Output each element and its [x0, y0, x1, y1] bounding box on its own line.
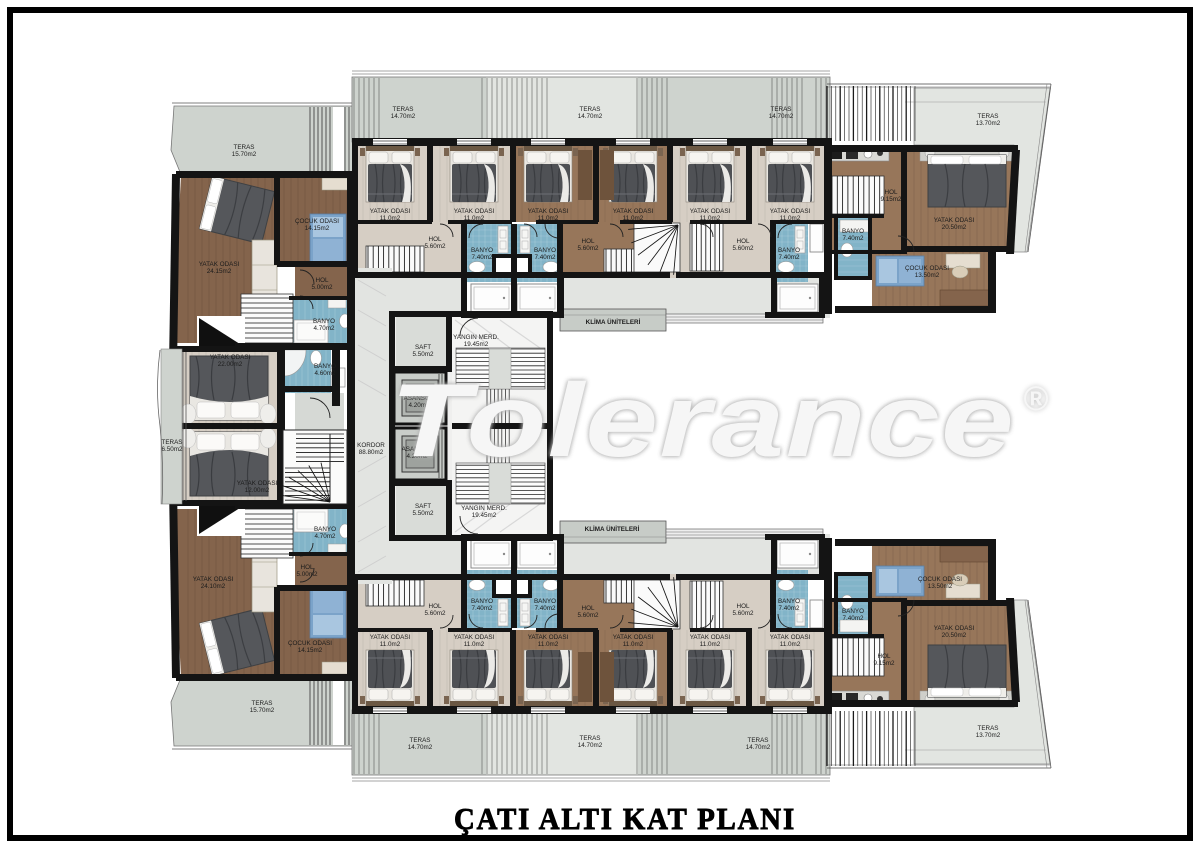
svg-text:ÇOCUK ODASI: ÇOCUK ODASI	[288, 640, 332, 647]
svg-text:19.45m2: 19.45m2	[464, 341, 489, 348]
svg-text:5.50m2: 5.50m2	[412, 510, 434, 517]
svg-text:TERAS: TERAS	[978, 113, 999, 120]
svg-text:YATAK ODASI: YATAK ODASI	[613, 208, 654, 215]
svg-text:YATAK ODASI: YATAK ODASI	[613, 634, 654, 641]
svg-text:YANGIN MERD.: YANGIN MERD.	[453, 334, 499, 341]
svg-text:TERAS: TERAS	[393, 106, 414, 113]
svg-text:14.70m2: 14.70m2	[769, 113, 794, 120]
svg-text:11.0m2: 11.0m2	[700, 641, 721, 648]
svg-text:KLİMA ÜNİTELERİ: KLİMA ÜNİTELERİ	[585, 524, 640, 533]
svg-text:11.0m2: 11.0m2	[780, 641, 801, 648]
svg-text:YATAK ODASI: YATAK ODASI	[770, 208, 811, 215]
svg-text:TERAS: TERAS	[580, 106, 601, 113]
svg-text:®: ®	[1023, 380, 1048, 418]
svg-text:11.0m2: 11.0m2	[380, 641, 401, 648]
svg-text:11.0m2: 11.0m2	[623, 215, 644, 222]
svg-text:YATAK ODASI: YATAK ODASI	[528, 634, 569, 641]
svg-text:11.0m2: 11.0m2	[623, 641, 644, 648]
svg-text:TERAS: TERAS	[234, 144, 255, 151]
svg-text:HOL: HOL	[429, 603, 442, 610]
svg-text:BANYO: BANYO	[778, 247, 800, 254]
svg-text:24.10m2: 24.10m2	[201, 583, 226, 590]
svg-text:YATAK ODASI: YATAK ODASI	[934, 625, 975, 632]
svg-text:TERAS: TERAS	[162, 439, 183, 446]
svg-text:YATAK ODASI: YATAK ODASI	[370, 634, 411, 641]
svg-text:14.70m2: 14.70m2	[746, 744, 771, 751]
svg-text:7.40m2: 7.40m2	[778, 605, 800, 612]
svg-text:6.50m2: 6.50m2	[161, 446, 183, 453]
svg-text:BANYO: BANYO	[842, 228, 864, 235]
svg-text:BANYO: BANYO	[471, 247, 493, 254]
svg-text:HOL: HOL	[429, 236, 442, 243]
svg-text:14.15m2: 14.15m2	[298, 647, 323, 654]
svg-text:11.0m2: 11.0m2	[380, 215, 401, 222]
svg-text:5.60m2: 5.60m2	[577, 612, 599, 619]
svg-text:YATAK ODASI: YATAK ODASI	[454, 208, 495, 215]
svg-text:KORDOR: KORDOR	[357, 442, 385, 449]
svg-text:9.15m2: 9.15m2	[873, 660, 895, 667]
svg-text:TERAS: TERAS	[748, 737, 769, 744]
svg-text:HOL: HOL	[582, 605, 595, 612]
svg-text:5.60m2: 5.60m2	[424, 610, 446, 617]
svg-text:YANGIN MERD.: YANGIN MERD.	[461, 505, 507, 512]
svg-text:YATAK ODASI: YATAK ODASI	[237, 480, 278, 487]
svg-text:5.60m2: 5.60m2	[732, 610, 754, 617]
svg-text:YATAK ODASI: YATAK ODASI	[199, 261, 240, 268]
svg-text:YATAK ODASI: YATAK ODASI	[770, 634, 811, 641]
svg-text:4.70m2: 4.70m2	[313, 325, 335, 332]
svg-text:BANYO: BANYO	[314, 363, 336, 370]
svg-text:HOL: HOL	[878, 653, 891, 660]
svg-text:5.60m2: 5.60m2	[732, 245, 754, 252]
svg-text:HOL: HOL	[582, 238, 595, 245]
svg-text:15.70m2: 15.70m2	[250, 707, 275, 714]
svg-text:7.40m2: 7.40m2	[534, 605, 556, 612]
svg-text:24.15m2: 24.15m2	[207, 268, 232, 275]
svg-text:TERAS: TERAS	[771, 106, 792, 113]
svg-text:13.50m2: 13.50m2	[928, 583, 953, 590]
svg-text:BANYO: BANYO	[534, 598, 556, 605]
svg-text:HOL: HOL	[737, 238, 750, 245]
svg-text:11.0m2: 11.0m2	[464, 641, 485, 648]
svg-text:13.70m2: 13.70m2	[976, 120, 1001, 127]
svg-text:7.40m2: 7.40m2	[471, 254, 493, 261]
svg-text:4.70m2: 4.70m2	[314, 533, 336, 540]
svg-text:HOL: HOL	[301, 564, 314, 571]
svg-text:YATAK ODASI: YATAK ODASI	[934, 217, 975, 224]
svg-text:88.80m2: 88.80m2	[359, 449, 384, 456]
svg-text:YATAK ODASI: YATAK ODASI	[210, 354, 251, 361]
svg-text:YATAK ODASI: YATAK ODASI	[454, 634, 495, 641]
svg-text:14.70m2: 14.70m2	[578, 742, 603, 749]
svg-text:14.70m2: 14.70m2	[391, 113, 416, 120]
svg-text:TERAS: TERAS	[410, 737, 431, 744]
svg-text:ÇATI ALTI KAT PLANI: ÇATI ALTI KAT PLANI	[454, 801, 796, 836]
svg-text:7.40m2: 7.40m2	[778, 254, 800, 261]
svg-text:HOL: HOL	[885, 189, 898, 196]
svg-text:ÇOCUK ODASI: ÇOCUK ODASI	[918, 576, 962, 583]
svg-text:5.50m2: 5.50m2	[412, 351, 434, 358]
svg-text:7.40m2: 7.40m2	[842, 235, 864, 242]
svg-text:YATAK ODASI: YATAK ODASI	[528, 208, 569, 215]
svg-text:13.70m2: 13.70m2	[976, 732, 1001, 739]
svg-text:KLİMA ÜNİTELERİ: KLİMA ÜNİTELERİ	[586, 317, 641, 326]
svg-text:5.00m2: 5.00m2	[311, 284, 333, 291]
svg-text:20.50m2: 20.50m2	[942, 224, 967, 231]
svg-text:11.0m2: 11.0m2	[464, 215, 485, 222]
svg-text:ÇOCUK ODASI: ÇOCUK ODASI	[295, 218, 339, 225]
svg-text:Tolerance: Tolerance	[390, 363, 1015, 479]
svg-text:11.0m2: 11.0m2	[700, 215, 721, 222]
svg-text:9.15m2: 9.15m2	[880, 196, 902, 203]
svg-text:BANYO: BANYO	[842, 608, 864, 615]
svg-text:YATAK ODASI: YATAK ODASI	[193, 576, 234, 583]
svg-text:YATAK ODASI: YATAK ODASI	[690, 634, 731, 641]
svg-text:5.60m2: 5.60m2	[577, 245, 599, 252]
svg-text:BANYO: BANYO	[471, 598, 493, 605]
svg-text:12.00m2: 12.00m2	[245, 487, 270, 494]
svg-text:19.45m2: 19.45m2	[472, 512, 497, 519]
svg-text:13.50m2: 13.50m2	[915, 272, 940, 279]
svg-text:BANYO: BANYO	[313, 318, 335, 325]
svg-text:15.70m2: 15.70m2	[232, 151, 257, 158]
svg-text:5.00m2: 5.00m2	[296, 571, 318, 578]
svg-text:14.70m2: 14.70m2	[408, 744, 433, 751]
svg-text:14.15m2: 14.15m2	[305, 225, 330, 232]
svg-text:7.40m2: 7.40m2	[534, 254, 556, 261]
svg-text:SAFT: SAFT	[415, 503, 431, 510]
svg-text:YATAK ODASI: YATAK ODASI	[370, 208, 411, 215]
svg-text:BANYO: BANYO	[314, 526, 336, 533]
svg-text:7.40m2: 7.40m2	[842, 615, 864, 622]
svg-text:14.70m2: 14.70m2	[578, 113, 603, 120]
svg-text:BANYO: BANYO	[534, 247, 556, 254]
svg-text:TERAS: TERAS	[978, 725, 999, 732]
svg-text:TERAS: TERAS	[252, 700, 273, 707]
svg-text:TERAS: TERAS	[580, 735, 601, 742]
svg-text:11.0m2: 11.0m2	[538, 641, 559, 648]
svg-text:YATAK ODASI: YATAK ODASI	[690, 208, 731, 215]
svg-text:11.0m2: 11.0m2	[538, 215, 559, 222]
svg-text:HOL: HOL	[316, 277, 329, 284]
svg-text:20.50m2: 20.50m2	[942, 632, 967, 639]
svg-text:7.40m2: 7.40m2	[471, 605, 493, 612]
svg-text:HOL: HOL	[737, 603, 750, 610]
svg-text:4.60m2: 4.60m2	[314, 370, 336, 377]
svg-text:22.00m2: 22.00m2	[218, 361, 243, 368]
svg-text:BANYO: BANYO	[778, 598, 800, 605]
svg-text:ÇOCUK ODASI: ÇOCUK ODASI	[905, 265, 949, 272]
svg-text:SAFT: SAFT	[415, 344, 431, 351]
svg-text:5.60m2: 5.60m2	[424, 243, 446, 250]
svg-text:11.0m2: 11.0m2	[780, 215, 801, 222]
